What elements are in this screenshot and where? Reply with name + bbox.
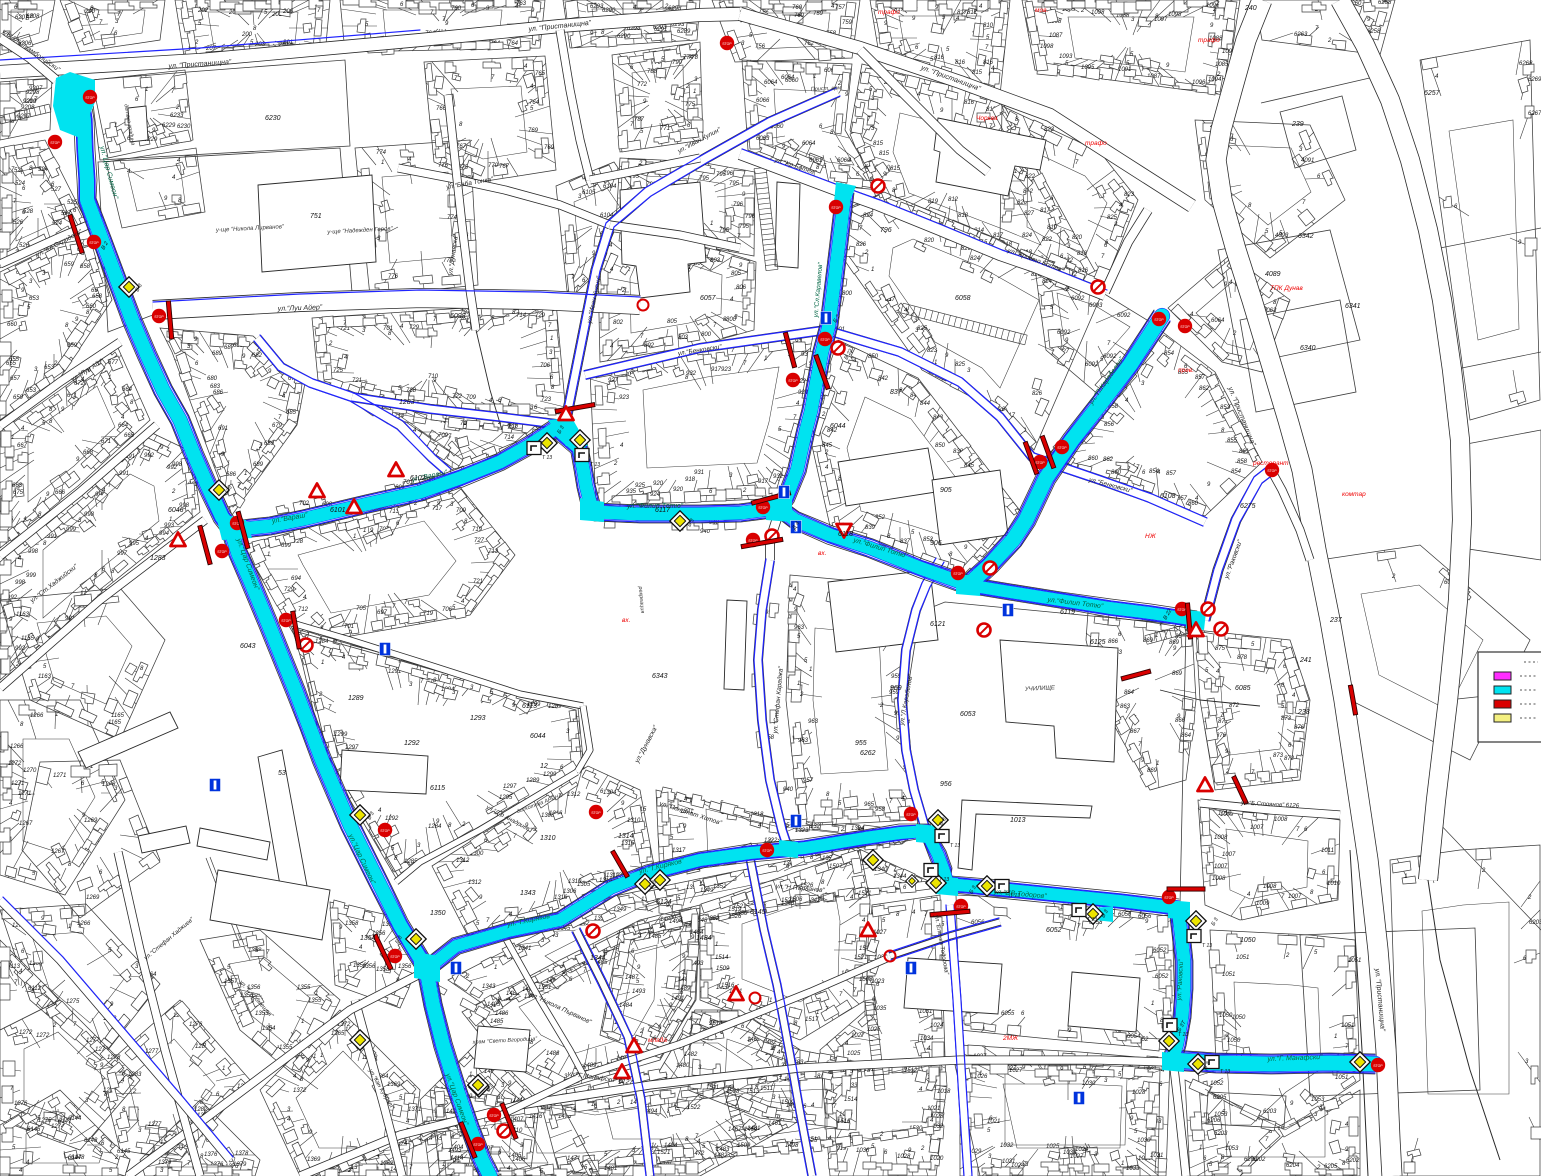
- svg-text:727: 727: [474, 538, 485, 544]
- svg-text:1009: 1009: [1256, 901, 1270, 907]
- svg-text:1: 1: [494, 965, 497, 971]
- svg-text:1485: 1485: [648, 934, 662, 940]
- svg-text:1: 1: [1156, 761, 1159, 767]
- svg-text:812: 812: [948, 197, 959, 203]
- svg-text:1358: 1358: [345, 921, 359, 927]
- svg-text:775: 775: [685, 102, 696, 108]
- svg-text:689: 689: [212, 351, 223, 357]
- svg-text:2: 2: [328, 341, 333, 347]
- svg-text:2: 2: [465, 974, 470, 980]
- svg-text:1033: 1033: [1063, 1150, 1077, 1156]
- svg-text:1267: 1267: [19, 821, 33, 827]
- svg-text:1: 1: [1404, 874, 1407, 880]
- svg-text:844: 844: [920, 401, 931, 407]
- svg-text:1: 1: [1199, 1145, 1202, 1151]
- svg-text:875: 875: [1215, 646, 1226, 652]
- svg-text:1: 1: [813, 74, 816, 80]
- svg-text:759: 759: [842, 20, 853, 26]
- svg-text:2: 2: [132, 1089, 137, 1095]
- svg-text:1: 1: [353, 534, 356, 540]
- svg-text:1: 1: [871, 267, 874, 273]
- svg-text:1098: 1098: [1091, 10, 1105, 16]
- svg-text:772: 772: [637, 82, 648, 88]
- svg-text:806: 806: [736, 285, 747, 291]
- svg-text:6269: 6269: [1528, 77, 1541, 83]
- svg-text:1271: 1271: [18, 791, 31, 797]
- svg-text:2: 2: [461, 822, 466, 828]
- svg-text:1023: 1023: [871, 979, 885, 985]
- svg-text:1304: 1304: [603, 790, 617, 796]
- svg-text:2: 2: [114, 1155, 119, 1161]
- svg-text:659: 659: [13, 395, 24, 401]
- svg-text:723: 723: [541, 397, 552, 403]
- svg-text:2: 2: [864, 250, 869, 256]
- svg-text:2: 2: [1212, 7, 1217, 13]
- svg-text:658: 658: [80, 264, 91, 270]
- svg-text:526: 526: [13, 220, 24, 226]
- svg-text:1317: 1317: [672, 848, 686, 854]
- svg-text:667: 667: [17, 443, 28, 449]
- svg-text:701: 701: [344, 624, 354, 630]
- svg-text:2: 2: [621, 288, 626, 294]
- svg-text:2: 2: [821, 412, 826, 418]
- svg-text:666: 666: [55, 490, 66, 496]
- svg-text:800: 800: [701, 332, 712, 338]
- svg-text:1289: 1289: [526, 778, 540, 784]
- svg-text:999: 999: [66, 527, 77, 533]
- svg-text:760: 760: [451, 6, 462, 12]
- svg-text:860: 860: [1111, 470, 1122, 476]
- svg-text:816: 816: [964, 100, 975, 106]
- svg-text:963: 963: [798, 738, 809, 744]
- svg-text:1341: 1341: [518, 946, 531, 952]
- svg-text:805: 805: [667, 319, 678, 325]
- svg-text:764: 764: [508, 41, 519, 47]
- svg-text:1486: 1486: [546, 1051, 560, 1057]
- svg-text:999: 999: [26, 573, 37, 579]
- svg-text:6203: 6203: [1244, 1157, 1258, 1163]
- svg-text:1033: 1033: [1126, 1166, 1140, 1172]
- svg-text:2: 2: [613, 461, 618, 467]
- svg-text:6230: 6230: [177, 124, 191, 130]
- svg-text:817: 817: [1040, 208, 1051, 214]
- svg-text:1053: 1053: [1225, 1146, 1239, 1152]
- svg-text:1312: 1312: [468, 880, 482, 886]
- svg-text:1026: 1026: [974, 1074, 988, 1080]
- svg-text:6064: 6064: [802, 141, 816, 147]
- svg-text:774: 774: [447, 215, 458, 221]
- svg-text:1091: 1091: [1118, 67, 1131, 73]
- svg-text:2: 2: [1527, 895, 1532, 901]
- svg-text:1365: 1365: [331, 1031, 345, 1037]
- svg-text:925: 925: [635, 483, 646, 489]
- svg-text:998: 998: [15, 580, 26, 586]
- svg-text:998: 998: [28, 549, 39, 555]
- svg-text:1271: 1271: [11, 781, 24, 787]
- svg-text:1: 1: [320, 1053, 323, 1059]
- svg-text:1516: 1516: [721, 983, 735, 989]
- svg-text:1011: 1011: [1321, 848, 1334, 854]
- svg-text:1461: 1461: [768, 1121, 781, 1127]
- svg-text:1521: 1521: [657, 1150, 670, 1156]
- svg-text:795: 795: [739, 224, 750, 230]
- svg-text:6203: 6203: [1529, 920, 1541, 926]
- svg-text:1269: 1269: [84, 818, 98, 824]
- svg-text:1098: 1098: [1040, 44, 1054, 50]
- svg-text:820: 820: [1072, 235, 1083, 241]
- svg-text:1087: 1087: [1049, 33, 1063, 39]
- svg-text:1051: 1051: [1236, 955, 1249, 961]
- svg-text:873: 873: [1281, 716, 1292, 722]
- svg-text:1031: 1031: [1150, 1153, 1163, 1159]
- svg-text:6289: 6289: [677, 29, 691, 35]
- svg-text:825: 825: [955, 362, 966, 368]
- svg-text:1344: 1344: [893, 874, 907, 880]
- svg-text:1: 1: [244, 471, 247, 477]
- svg-text:869: 869: [1172, 671, 1183, 677]
- svg-text:714: 714: [516, 313, 527, 319]
- svg-text:710: 710: [428, 374, 439, 380]
- svg-text:873: 873: [1273, 753, 1284, 759]
- svg-text:706: 706: [540, 363, 551, 369]
- svg-text:663: 663: [12, 483, 23, 489]
- svg-text:680: 680: [207, 376, 218, 382]
- svg-text:2: 2: [742, 488, 747, 494]
- svg-text:6060: 6060: [785, 78, 799, 84]
- svg-text:810: 810: [983, 23, 994, 29]
- svg-text:728: 728: [293, 539, 304, 545]
- svg-text:685: 685: [286, 410, 297, 416]
- svg-text:664: 664: [122, 387, 133, 393]
- svg-text:1: 1: [11, 435, 14, 441]
- svg-text:6233: 6233: [170, 113, 184, 119]
- svg-text:878: 878: [1237, 655, 1248, 661]
- svg-text:2: 2: [1391, 574, 1396, 580]
- svg-text:839: 839: [865, 525, 876, 531]
- svg-text:1: 1: [55, 712, 58, 718]
- svg-text:872: 872: [1284, 756, 1295, 762]
- svg-text:1297: 1297: [503, 784, 517, 790]
- svg-text:855: 855: [1227, 438, 1238, 444]
- svg-text:796: 796: [723, 171, 734, 177]
- svg-text:1369: 1369: [387, 1082, 401, 1088]
- svg-text:6064: 6064: [764, 80, 778, 86]
- svg-text:675: 675: [13, 490, 24, 496]
- svg-text:6054: 6054: [1127, 1034, 1141, 1040]
- svg-text:876: 876: [1294, 725, 1305, 731]
- svg-text:1483: 1483: [716, 1147, 730, 1153]
- svg-text:729: 729: [535, 313, 546, 319]
- svg-text:1493: 1493: [448, 1148, 462, 1154]
- svg-text:1028: 1028: [897, 1154, 911, 1160]
- svg-text:713: 713: [488, 549, 499, 555]
- svg-text:957: 957: [803, 778, 814, 784]
- svg-text:1: 1: [1121, 1161, 1124, 1167]
- svg-text:771: 771: [660, 126, 670, 132]
- svg-text:1008: 1008: [1263, 884, 1277, 890]
- svg-text:525: 525: [67, 200, 78, 206]
- svg-text:6147: 6147: [68, 1155, 82, 1161]
- svg-text:1: 1: [363, 528, 366, 534]
- svg-text:6263: 6263: [1294, 32, 1308, 38]
- svg-text:200: 200: [241, 32, 253, 38]
- svg-text:860: 860: [1188, 501, 1199, 507]
- svg-text:857: 857: [1166, 471, 1177, 477]
- svg-text:1036: 1036: [856, 1148, 870, 1154]
- svg-text:1356: 1356: [398, 964, 412, 970]
- svg-text:796: 796: [733, 202, 744, 208]
- svg-text:917: 917: [758, 479, 769, 485]
- svg-text:6064: 6064: [1211, 318, 1225, 324]
- svg-text:1507: 1507: [829, 864, 843, 870]
- svg-text:658: 658: [92, 294, 103, 300]
- svg-text:1526: 1526: [728, 914, 742, 920]
- svg-text:802: 802: [644, 343, 655, 349]
- svg-text:1: 1: [313, 1054, 316, 1060]
- svg-text:863: 863: [1120, 704, 1131, 710]
- svg-text:2: 2: [879, 703, 884, 709]
- svg-text:671: 671: [101, 439, 111, 445]
- svg-text:1051: 1051: [1348, 958, 1361, 964]
- svg-text:850: 850: [868, 354, 879, 360]
- svg-text:1095: 1095: [1081, 65, 1095, 71]
- svg-text:6267: 6267: [1528, 111, 1541, 117]
- svg-text:1405: 1405: [508, 1153, 522, 1159]
- svg-text:524: 524: [15, 181, 26, 187]
- svg-text:866: 866: [1108, 639, 1119, 645]
- svg-text:864: 864: [1181, 733, 1192, 739]
- svg-text:757: 757: [835, 5, 846, 11]
- svg-text:1284: 1284: [428, 824, 442, 830]
- svg-text:6202: 6202: [1346, 1158, 1360, 1164]
- svg-text:1050: 1050: [1219, 1013, 1233, 1019]
- svg-text:1315: 1315: [621, 841, 635, 847]
- svg-text:823: 823: [927, 348, 938, 354]
- svg-text:932: 932: [686, 371, 697, 377]
- svg-text:932: 932: [773, 474, 784, 480]
- svg-text:1: 1: [1334, 1034, 1337, 1040]
- svg-text:1: 1: [757, 1079, 760, 1085]
- svg-text:1051: 1051: [1222, 972, 1235, 978]
- svg-text:857: 857: [1195, 375, 1206, 381]
- svg-text:994: 994: [159, 531, 170, 537]
- svg-text:842: 842: [878, 376, 889, 382]
- svg-text:854: 854: [1149, 469, 1160, 475]
- svg-text:853: 853: [1220, 405, 1231, 411]
- svg-text:861: 861: [1239, 449, 1249, 455]
- svg-text:6206: 6206: [1207, 1118, 1221, 1124]
- svg-text:1007: 1007: [1250, 825, 1264, 831]
- svg-text:657: 657: [10, 376, 21, 382]
- svg-text:2: 2: [171, 489, 176, 495]
- svg-text:1: 1: [816, 1010, 819, 1016]
- svg-text:1498: 1498: [785, 1143, 799, 1149]
- svg-text:803: 803: [710, 258, 721, 264]
- svg-text:9207: 9207: [29, 86, 43, 92]
- svg-text:2: 2: [175, 105, 180, 111]
- svg-text:1266: 1266: [77, 921, 91, 927]
- svg-text:1085: 1085: [1215, 62, 1229, 68]
- svg-text:6293: 6293: [653, 25, 667, 31]
- svg-text:1007: 1007: [1214, 864, 1228, 870]
- svg-text:1514: 1514: [715, 955, 729, 961]
- svg-text:760: 760: [792, 5, 803, 11]
- svg-text:6205: 6205: [1213, 1095, 1227, 1101]
- svg-text:1354: 1354: [262, 1026, 276, 1032]
- svg-text:923: 923: [619, 395, 630, 401]
- svg-text:655: 655: [9, 357, 20, 363]
- svg-text:795: 795: [729, 181, 740, 187]
- svg-text:6145: 6145: [117, 1149, 131, 1155]
- svg-text:778: 778: [688, 55, 699, 61]
- svg-text:992: 992: [144, 453, 155, 459]
- svg-text:653: 653: [29, 296, 40, 302]
- svg-text:1: 1: [222, 1066, 225, 1072]
- svg-text:2: 2: [258, 444, 263, 450]
- svg-text:722: 722: [452, 394, 463, 400]
- svg-text:867: 867: [1130, 729, 1141, 735]
- svg-text:697: 697: [377, 610, 388, 616]
- svg-text:1272: 1272: [36, 1033, 50, 1039]
- svg-text:1032: 1032: [1000, 1143, 1014, 1149]
- svg-text:1050: 1050: [1232, 1015, 1246, 1021]
- svg-text:1018: 1018: [937, 1089, 951, 1095]
- svg-text:2: 2: [1481, 868, 1486, 874]
- svg-text:1310: 1310: [568, 879, 582, 885]
- svg-text:1312: 1312: [456, 858, 470, 864]
- svg-text:927: 927: [608, 378, 619, 384]
- svg-text:1371: 1371: [408, 1107, 421, 1113]
- svg-text:659: 659: [67, 343, 78, 349]
- svg-text:815: 815: [972, 70, 983, 76]
- svg-text:776: 776: [388, 274, 399, 280]
- svg-text:1: 1: [715, 942, 718, 948]
- svg-text:923: 923: [721, 367, 732, 373]
- svg-text:6055: 6055: [1001, 1011, 1015, 1017]
- svg-text:802: 802: [613, 320, 624, 326]
- svg-text:6052: 6052: [1153, 948, 1167, 954]
- svg-text:920: 920: [673, 487, 684, 493]
- svg-text:677: 677: [108, 360, 119, 366]
- svg-text:862: 862: [1103, 457, 1114, 463]
- svg-text:2: 2: [1285, 953, 1290, 959]
- svg-text:706: 706: [442, 607, 453, 613]
- svg-text:6203: 6203: [1263, 1109, 1277, 1115]
- svg-text:1093: 1093: [1059, 54, 1073, 60]
- svg-text:1485: 1485: [490, 1019, 504, 1025]
- svg-text:1: 1: [1151, 1001, 1154, 1007]
- svg-text:1295: 1295: [499, 795, 513, 801]
- svg-text:1: 1: [301, 1019, 304, 1025]
- svg-text:2: 2: [824, 450, 829, 456]
- svg-text:1292: 1292: [385, 816, 399, 822]
- svg-text:815: 815: [873, 141, 884, 147]
- svg-text:826: 826: [856, 242, 867, 248]
- svg-text:721: 721: [473, 579, 483, 585]
- svg-text:2: 2: [1225, 1033, 1230, 1039]
- svg-text:2: 2: [1225, 769, 1230, 775]
- svg-text:6144: 6144: [68, 1116, 82, 1122]
- svg-text:924: 924: [650, 492, 661, 498]
- svg-text:2: 2: [840, 827, 845, 833]
- svg-text:729: 729: [284, 587, 295, 593]
- svg-text:1: 1: [469, 1072, 472, 1078]
- svg-text:1519: 1519: [728, 907, 742, 913]
- svg-text:1008: 1008: [1212, 876, 1226, 882]
- svg-text:2: 2: [52, 1023, 57, 1029]
- svg-text:6066: 6066: [756, 98, 770, 104]
- svg-text:1: 1: [1411, 1158, 1414, 1164]
- svg-text:1: 1: [114, 123, 117, 129]
- svg-text:1: 1: [550, 336, 553, 342]
- svg-text:1: 1: [381, 160, 384, 166]
- svg-text:1031: 1031: [1002, 1159, 1015, 1165]
- svg-text:854: 854: [1164, 351, 1175, 357]
- svg-text:1266: 1266: [10, 744, 24, 750]
- svg-text:1356: 1356: [353, 963, 367, 969]
- svg-text:9209: 9209: [23, 99, 37, 105]
- svg-text:816: 816: [955, 60, 966, 66]
- svg-text:1521: 1521: [854, 955, 867, 961]
- svg-text:1299: 1299: [334, 732, 348, 738]
- svg-text:763: 763: [516, 1, 527, 7]
- svg-text:1506: 1506: [789, 897, 803, 903]
- svg-text:1: 1: [108, 375, 111, 381]
- svg-text:856: 856: [1104, 422, 1115, 428]
- svg-text:1: 1: [693, 89, 696, 95]
- svg-text:845: 845: [964, 463, 975, 469]
- svg-text:1522: 1522: [687, 1105, 701, 1111]
- svg-text:1094: 1094: [1208, 77, 1222, 83]
- svg-text:800: 800: [726, 317, 737, 323]
- svg-text:1028: 1028: [1132, 1090, 1146, 1096]
- svg-text:709: 709: [456, 508, 467, 514]
- svg-text:1276: 1276: [14, 1101, 28, 1107]
- svg-text:1355: 1355: [308, 998, 322, 1004]
- svg-text:816: 816: [934, 55, 945, 61]
- svg-text:6052: 6052: [1155, 974, 1169, 980]
- svg-text:683: 683: [210, 384, 221, 390]
- svg-text:1486: 1486: [495, 1011, 509, 1017]
- svg-text:1096: 1096: [1192, 80, 1206, 86]
- svg-text:653: 653: [26, 388, 37, 394]
- svg-text:2: 2: [879, 1132, 884, 1138]
- svg-text:2: 2: [920, 1146, 925, 1152]
- svg-text:1521: 1521: [858, 891, 871, 897]
- svg-text:826: 826: [1032, 391, 1043, 397]
- svg-text:738: 738: [406, 388, 417, 394]
- svg-text:1008: 1008: [1274, 817, 1288, 823]
- svg-text:1355: 1355: [297, 985, 311, 991]
- svg-text:796: 796: [745, 214, 756, 220]
- svg-text:864: 864: [1124, 690, 1135, 696]
- svg-text:653: 653: [44, 365, 55, 371]
- svg-text:1: 1: [315, 991, 318, 997]
- svg-text:1025: 1025: [847, 1051, 861, 1057]
- svg-text:665: 665: [124, 433, 135, 439]
- svg-text:869: 869: [1147, 768, 1158, 774]
- svg-text:709: 709: [466, 395, 477, 401]
- svg-text:819: 819: [1047, 225, 1058, 231]
- svg-text:992: 992: [15, 646, 26, 652]
- svg-text:682: 682: [252, 353, 263, 359]
- svg-text:1010: 1010: [1327, 881, 1341, 887]
- svg-text:1: 1: [267, 552, 270, 558]
- svg-text:965: 965: [864, 802, 875, 808]
- svg-text:935: 935: [626, 489, 637, 495]
- svg-text:862: 862: [1199, 386, 1210, 392]
- svg-text:991: 991: [47, 534, 57, 540]
